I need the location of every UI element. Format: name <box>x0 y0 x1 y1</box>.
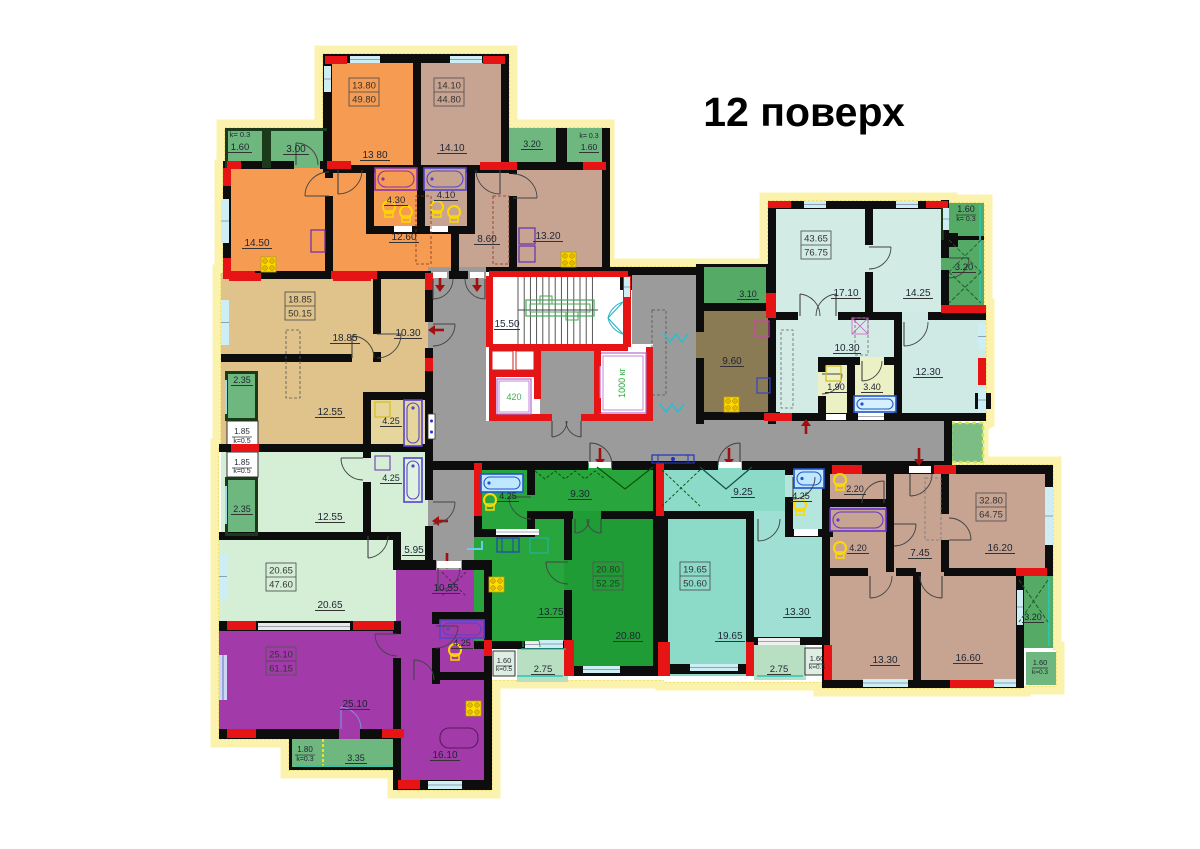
svg-text:13.20: 13.20 <box>535 231 560 242</box>
svg-text:1.85: 1.85 <box>234 458 250 467</box>
svg-text:10.30: 10.30 <box>834 343 859 354</box>
svg-text:13.75: 13.75 <box>538 607 563 618</box>
svg-text:20.65: 20.65 <box>269 566 293 577</box>
svg-text:3.00: 3.00 <box>286 144 306 155</box>
svg-text:k=0.5: k=0.5 <box>496 666 512 673</box>
svg-text:9.25: 9.25 <box>733 487 753 498</box>
svg-text:16.20: 16.20 <box>987 543 1012 554</box>
svg-text:25.10: 25.10 <box>269 650 293 661</box>
svg-text:4.10: 4.10 <box>437 190 456 201</box>
svg-text:4.25: 4.25 <box>382 473 400 483</box>
svg-text:14.50: 14.50 <box>244 238 269 249</box>
svg-text:4.25: 4.25 <box>453 638 471 648</box>
svg-text:64.75: 64.75 <box>979 510 1003 521</box>
svg-text:4.20: 4.20 <box>849 543 867 553</box>
svg-text:15.50: 15.50 <box>494 319 519 330</box>
svg-text:13 80: 13 80 <box>362 150 387 161</box>
svg-text:k=0.5: k=0.5 <box>233 438 250 445</box>
svg-text:3.40: 3.40 <box>863 382 881 392</box>
svg-text:12.55: 12.55 <box>317 512 342 523</box>
svg-text:19.65: 19.65 <box>717 631 742 642</box>
svg-text:17.10: 17.10 <box>833 288 858 299</box>
svg-text:13.30: 13.30 <box>872 655 897 666</box>
svg-text:49.80: 49.80 <box>352 95 376 106</box>
svg-text:50.15: 50.15 <box>288 309 312 320</box>
svg-text:9.60: 9.60 <box>722 356 742 367</box>
svg-text:47.60: 47.60 <box>269 580 293 591</box>
svg-text:1.60: 1.60 <box>497 656 512 665</box>
svg-text:32.80: 32.80 <box>979 496 1003 507</box>
svg-text:18.85: 18.85 <box>288 295 312 306</box>
svg-text:43.65: 43.65 <box>804 234 828 245</box>
svg-text:61.15: 61.15 <box>269 664 293 675</box>
svg-text:20.65: 20.65 <box>317 600 342 611</box>
svg-text:k=0.5: k=0.5 <box>233 468 250 475</box>
svg-text:3.20: 3.20 <box>955 262 974 273</box>
svg-text:12.60: 12.60 <box>391 232 416 243</box>
svg-text:12.30: 12.30 <box>915 367 940 378</box>
svg-text:16.10: 16.10 <box>432 750 457 761</box>
svg-text:k= 0.3: k= 0.3 <box>956 216 975 223</box>
svg-text:3.20: 3.20 <box>1024 612 1042 622</box>
svg-text:k=0.3: k=0.3 <box>1032 669 1048 676</box>
svg-text:14.10: 14.10 <box>439 143 464 154</box>
svg-text:420: 420 <box>506 392 521 402</box>
svg-text:44.80: 44.80 <box>437 95 461 106</box>
svg-text:13.30: 13.30 <box>784 607 809 618</box>
svg-text:13.80: 13.80 <box>352 81 376 92</box>
svg-text:1.60: 1.60 <box>810 654 825 663</box>
svg-text:k= 0.3: k= 0.3 <box>579 133 598 140</box>
svg-text:1.60: 1.60 <box>957 204 975 214</box>
svg-text:10.55: 10.55 <box>433 583 458 594</box>
svg-text:2.35: 2.35 <box>233 504 251 514</box>
svg-text:76.75: 76.75 <box>804 248 828 259</box>
svg-text:k=0.3: k=0.3 <box>296 756 313 763</box>
svg-text:19.65: 19.65 <box>683 565 707 576</box>
svg-text:3.20: 3.20 <box>523 139 541 149</box>
svg-text:18.85: 18.85 <box>332 333 357 344</box>
svg-text:2.75: 2.75 <box>534 664 553 675</box>
svg-text:12.55: 12.55 <box>317 407 342 418</box>
svg-text:1.85: 1.85 <box>234 427 250 436</box>
svg-text:2.20: 2.20 <box>846 484 864 494</box>
svg-text:50.60: 50.60 <box>683 579 707 590</box>
svg-text:4.25: 4.25 <box>382 416 400 426</box>
svg-text:10.30: 10.30 <box>395 328 420 339</box>
svg-text:14.10: 14.10 <box>437 81 461 92</box>
svg-text:3.10: 3.10 <box>739 289 757 299</box>
svg-text:k=0.5: k=0.5 <box>809 664 825 671</box>
svg-text:25.10: 25.10 <box>342 699 367 710</box>
svg-text:1.80: 1.80 <box>297 745 313 754</box>
svg-text:1.60: 1.60 <box>231 142 250 153</box>
svg-text:2.35: 2.35 <box>233 375 251 385</box>
svg-text:2.75: 2.75 <box>770 664 789 675</box>
svg-text:16.60: 16.60 <box>955 653 980 664</box>
svg-text:1.60: 1.60 <box>581 142 598 152</box>
svg-text:5.95: 5.95 <box>404 545 424 556</box>
svg-text:1.60: 1.60 <box>1033 658 1048 667</box>
svg-text:k= 0.3: k= 0.3 <box>230 130 251 139</box>
svg-text:7.45: 7.45 <box>910 548 930 559</box>
svg-text:4.25: 4.25 <box>792 491 810 501</box>
svg-text:20.80: 20.80 <box>615 631 640 642</box>
svg-text:20.80: 20.80 <box>596 565 620 576</box>
svg-text:3.35: 3.35 <box>347 753 365 763</box>
svg-text:1.90: 1.90 <box>827 382 845 392</box>
svg-text:9.30: 9.30 <box>570 489 590 500</box>
svg-text:4.25: 4.25 <box>499 491 517 501</box>
svg-text:8.60: 8.60 <box>477 234 497 245</box>
svg-text:52.25: 52.25 <box>596 579 620 590</box>
svg-text:14.25: 14.25 <box>905 288 930 299</box>
svg-text:12 поверх: 12 поверх <box>703 89 905 135</box>
svg-text:4.30: 4.30 <box>387 195 406 206</box>
svg-text:1000 кг: 1000 кг <box>617 367 627 397</box>
